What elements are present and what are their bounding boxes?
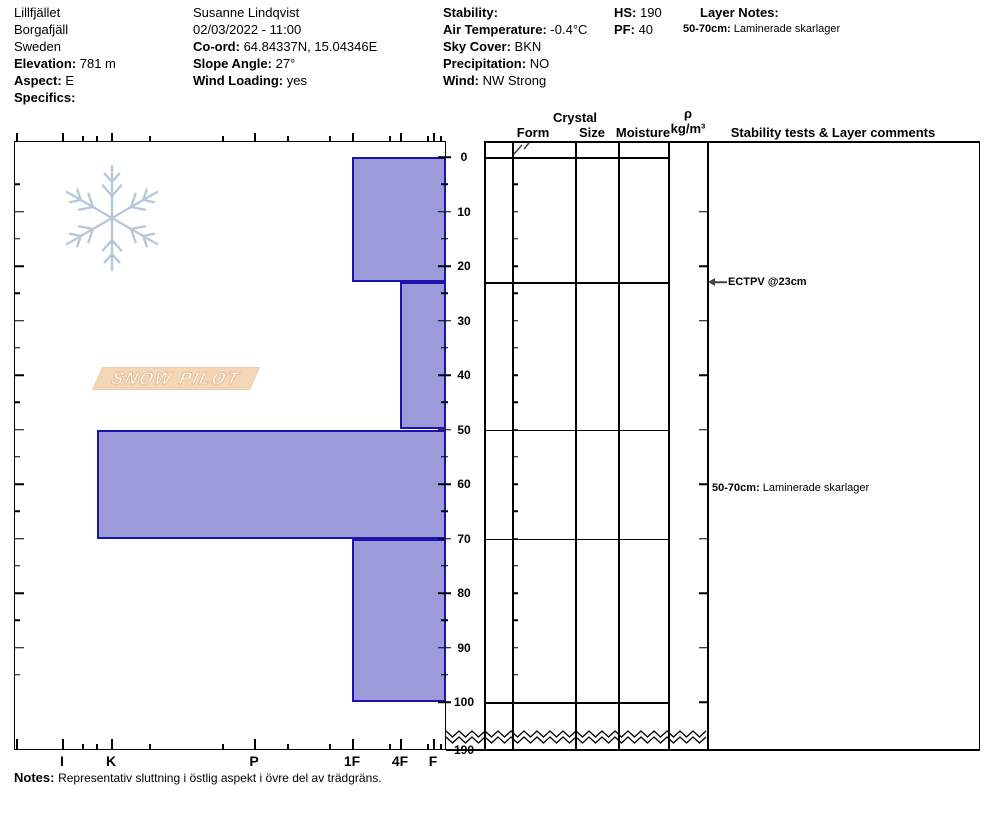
depth-tick-ruler	[512, 592, 518, 594]
hardness-major-tick-bottom	[400, 739, 402, 750]
depth-tick-left	[15, 293, 20, 295]
depth-tick-left	[15, 320, 24, 322]
depth-tick-ruler	[512, 429, 518, 431]
depth-tick-ruler	[512, 620, 518, 622]
hardness-minor-tick-top	[96, 136, 98, 141]
depth-tick-rho	[699, 320, 707, 322]
hardness-minor-tick-top	[329, 136, 331, 141]
depth-tick-rho	[699, 647, 707, 649]
depth-tick-label: 40	[457, 368, 470, 382]
depth-tick-scale	[438, 592, 451, 594]
depth-tick-label: 90	[457, 641, 470, 655]
depth-tick-rho	[699, 429, 707, 431]
hardness-major-tick-bottom	[62, 739, 64, 750]
depth-tick-label: 60	[457, 477, 470, 491]
depth-tick-left	[15, 402, 20, 404]
depth-tick-left	[15, 565, 20, 567]
hardness-tick-label: F	[429, 753, 438, 769]
ectpv-annotation: ECTPV @23cm	[728, 276, 807, 288]
depth-tick-scale	[438, 156, 451, 158]
depth-tick-ruler	[512, 347, 518, 349]
chart-dynamic-layer: 0102030405060708090100190IKP1F4FFECTPV @…	[0, 0, 994, 840]
depth-tick-ruler	[512, 265, 518, 267]
depth-tick-left	[15, 456, 20, 458]
hardness-minor-tick-bottom	[389, 744, 391, 750]
depth-tick-ruler	[512, 238, 518, 240]
hardness-minor-tick-bottom	[287, 744, 289, 750]
depth-tick-scale	[438, 647, 451, 649]
depth-tick-left	[15, 674, 20, 676]
depth-tick-scale	[441, 620, 448, 622]
hardness-minor-tick-top	[287, 136, 289, 141]
depth-tick-scale	[441, 402, 448, 404]
depth-tick-ruler	[512, 538, 518, 540]
hardness-tick-label: P	[249, 753, 258, 769]
depth-tick-scale	[441, 184, 448, 186]
depth-tick-left	[15, 211, 24, 213]
hardness-minor-tick-top	[389, 136, 391, 141]
hardness-major-tick-bottom	[352, 739, 354, 750]
hardness-major-tick-top	[111, 133, 113, 141]
hardness-major-tick-bottom	[111, 739, 113, 750]
notes-line: Notes: Representativ sluttning i östlig …	[14, 770, 382, 785]
depth-tick-rho	[699, 483, 707, 485]
hardness-minor-tick-top	[440, 136, 442, 141]
hardness-minor-tick-bottom	[149, 744, 151, 750]
depth-tick-left	[15, 620, 20, 622]
depth-tick-scale	[438, 701, 451, 703]
snow-layer-bar	[352, 157, 446, 282]
depth-tick-scale	[438, 374, 451, 376]
depth-tick-scale	[438, 211, 451, 213]
depth-tick-scale	[438, 538, 451, 540]
depth-tick-scale	[438, 320, 451, 322]
hardness-major-tick-top	[62, 133, 64, 141]
ectpv-arrow-line	[713, 282, 727, 284]
depth-tick-ruler	[512, 184, 518, 186]
hardness-major-tick-top	[433, 133, 435, 141]
layer-comment: 50-70cm: Laminerade skarlager	[712, 482, 869, 494]
hardness-minor-tick-bottom	[329, 744, 331, 750]
depth-tick-ruler	[512, 402, 518, 404]
depth-tick-left	[15, 538, 24, 540]
depth-tick-label: 0	[461, 150, 468, 164]
hardness-minor-tick-bottom	[427, 744, 429, 750]
hardness-minor-tick-bottom	[82, 744, 84, 750]
layer-boundary-line	[484, 702, 668, 704]
depth-tick-label: 100	[454, 695, 474, 709]
hardness-tick-label: I	[60, 753, 64, 769]
depth-tick-rho	[699, 701, 707, 703]
depth-tick-ruler	[512, 674, 518, 676]
depth-tick-left	[15, 429, 24, 431]
hardness-major-tick-top	[254, 133, 256, 141]
depth-tick-scale	[438, 265, 451, 267]
hardness-tick-label: 1F	[344, 753, 360, 769]
depth-tick-ruler	[512, 293, 518, 295]
depth-tick-ruler	[512, 647, 518, 649]
hardness-minor-tick-top	[82, 136, 84, 141]
depth-tick-left	[15, 347, 20, 349]
depth-tick-label: 80	[457, 586, 470, 600]
depth-tick-left	[15, 592, 24, 594]
depth-tick-ruler	[512, 511, 518, 513]
depth-tick-scale	[438, 429, 451, 431]
depth-tick-label: 10	[457, 205, 470, 219]
depth-tick-scale	[441, 347, 448, 349]
hardness-minor-tick-bottom	[222, 744, 224, 750]
depth-tick-left	[15, 184, 20, 186]
notes-text: Representativ sluttning i östlig aspekt …	[58, 771, 382, 785]
depth-tick-left	[15, 483, 24, 485]
notes-label: Notes:	[14, 770, 54, 785]
hardness-minor-tick-top	[222, 136, 224, 141]
depth-tick-left	[15, 238, 20, 240]
depth-tick-label: 20	[457, 259, 470, 273]
hardness-tick-label: 4F	[392, 753, 408, 769]
depth-tick-left	[15, 374, 24, 376]
hardness-tick-label: K	[106, 753, 116, 769]
depth-tick-scale	[441, 456, 448, 458]
layer-boundary-line	[484, 157, 668, 159]
depth-tick-ruler	[512, 565, 518, 567]
hardness-major-tick-top	[400, 133, 402, 141]
depth-tick-label: 70	[457, 532, 470, 546]
depth-tick-scale	[438, 483, 451, 485]
depth-tick-scale	[441, 293, 448, 295]
depth-tick-rho	[699, 538, 707, 540]
depth-tick-left	[15, 647, 24, 649]
layer-boundary-line	[484, 282, 668, 284]
depth-tick-left	[15, 265, 24, 267]
depth-tick-rho	[699, 592, 707, 594]
snow-profile-chart: 0102030405060708090100190IKP1F4FFECTPV @…	[0, 0, 994, 840]
depth-tick-scale	[441, 674, 448, 676]
snow-layer-bar	[400, 282, 446, 429]
depth-tick-scale	[441, 238, 448, 240]
depth-tick-label: 30	[457, 314, 470, 328]
hardness-major-tick-top	[16, 133, 18, 141]
depth-tick-ruler	[512, 483, 518, 485]
hardness-minor-tick-top	[427, 136, 429, 141]
depth-tick-ruler	[512, 320, 518, 322]
depth-tick-ruler	[512, 456, 518, 458]
hardness-major-tick-bottom	[16, 739, 18, 750]
hardness-major-tick-bottom	[254, 739, 256, 750]
hardness-minor-tick-bottom	[96, 744, 98, 750]
hardness-minor-tick-bottom	[440, 744, 442, 750]
hardness-major-tick-top	[352, 133, 354, 141]
depth-tick-ruler	[512, 211, 518, 213]
depth-tick-rho	[699, 374, 707, 376]
snow-layer-bar	[97, 430, 446, 539]
hardness-minor-tick-top	[149, 136, 151, 141]
depth-tick-scale	[441, 511, 448, 513]
depth-tick-left	[15, 511, 20, 513]
depth-total-label: 190	[454, 743, 474, 757]
zigzag-break	[0, 0, 994, 840]
depth-tick-scale	[441, 565, 448, 567]
depth-tick-rho	[699, 211, 707, 213]
depth-tick-label: 50	[457, 423, 470, 437]
snowpilot-profile-report: Lillfjället Borgafjäll Sweden Elevation:…	[0, 0, 994, 840]
snow-layer-bar	[352, 539, 446, 703]
depth-tick-ruler	[512, 374, 518, 376]
depth-tick-rho	[699, 265, 707, 267]
hardness-major-tick-bottom	[433, 739, 435, 750]
